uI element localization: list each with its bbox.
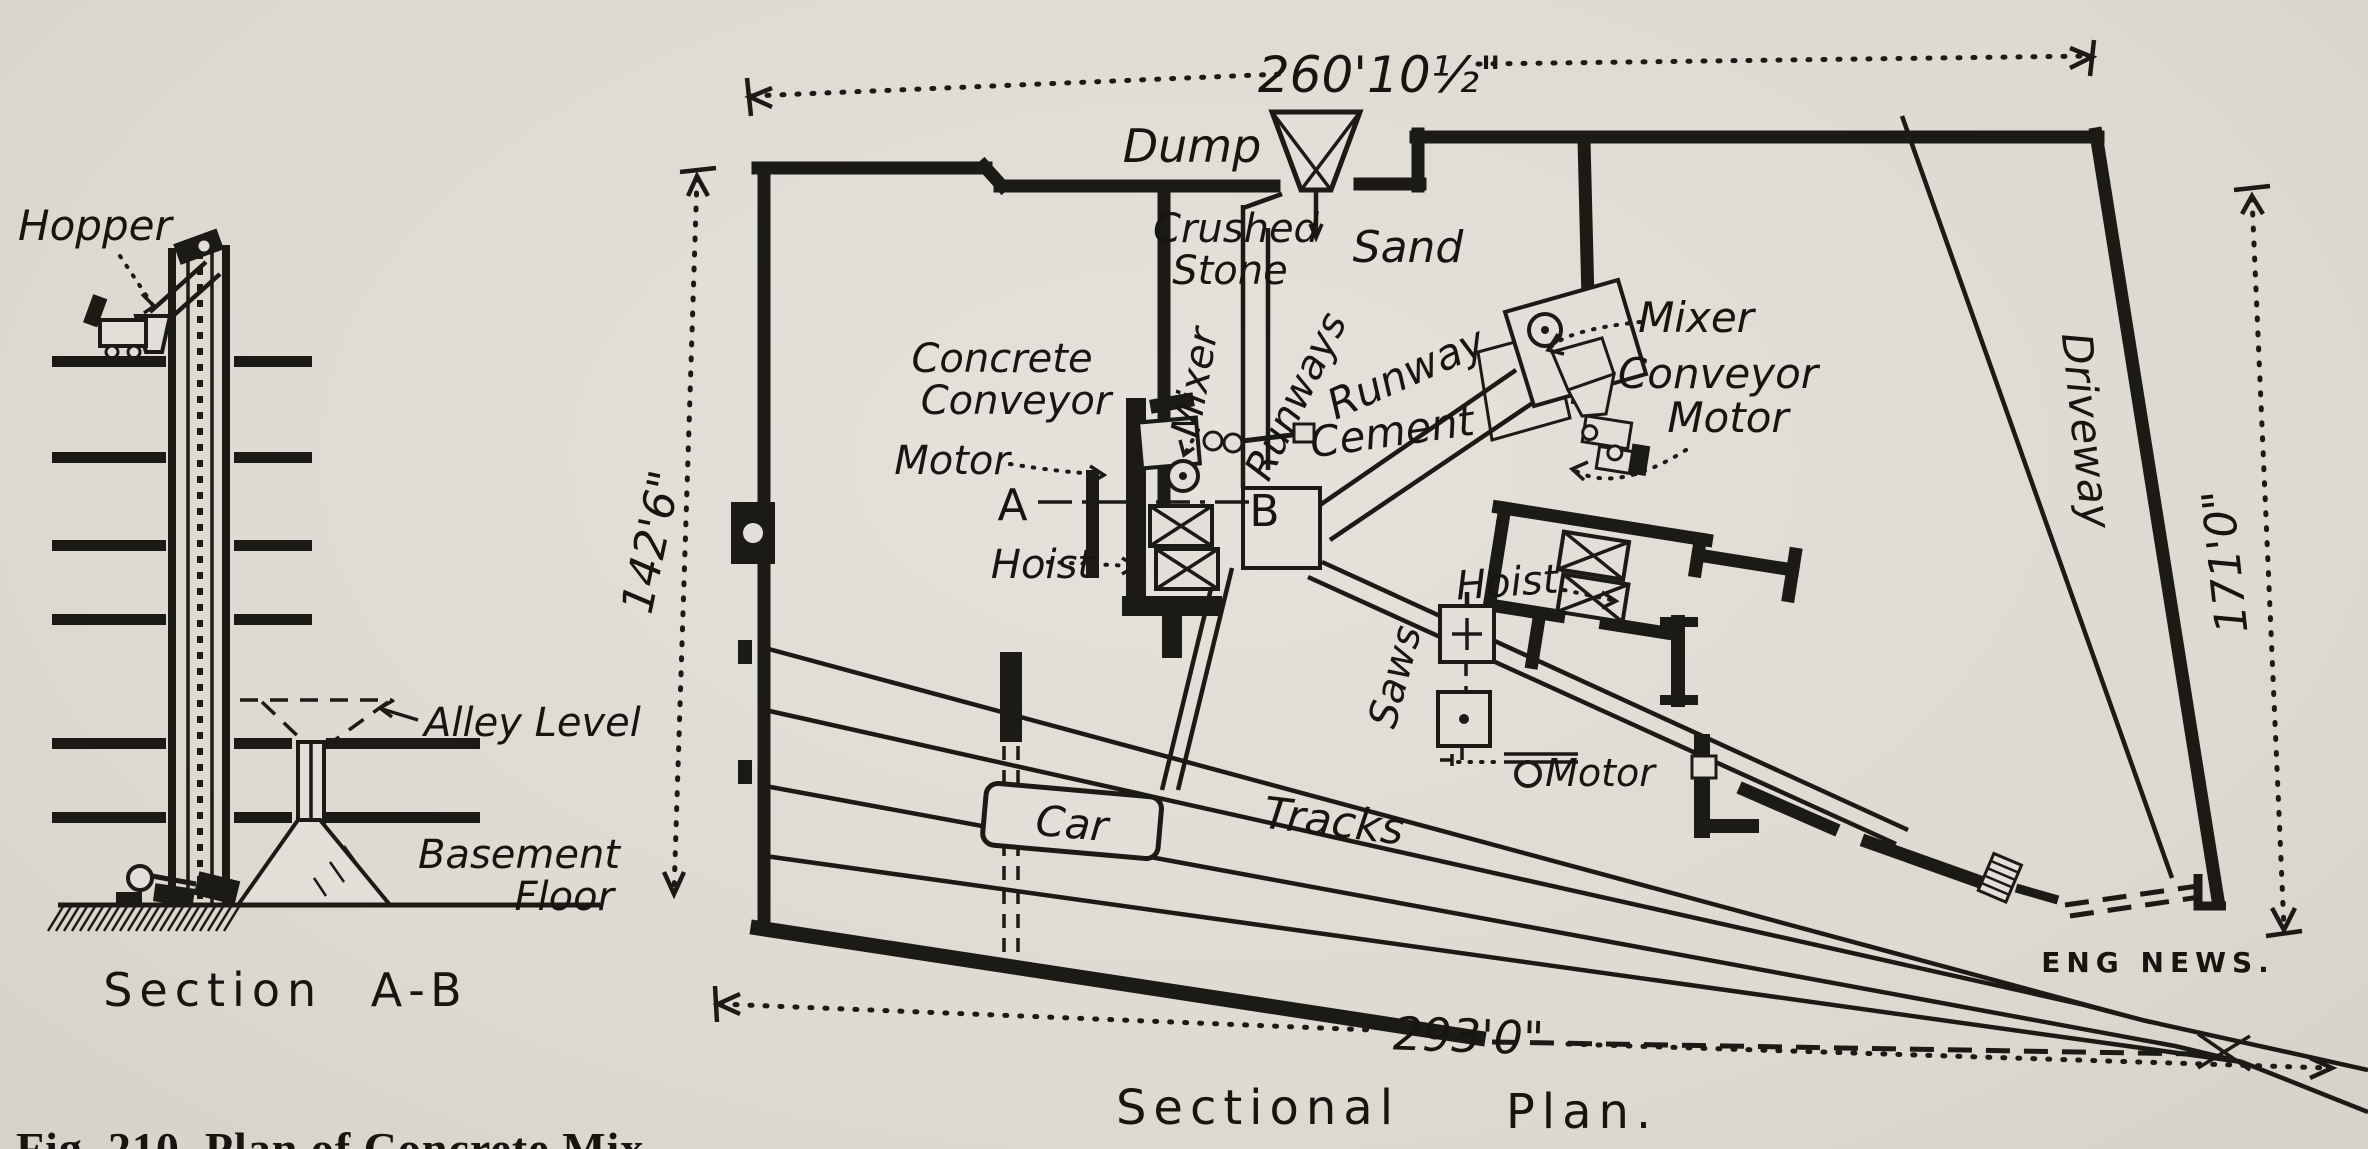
dim-left-label: 142'6" bbox=[612, 466, 692, 618]
saw-motor-label: Motor bbox=[1545, 751, 1657, 795]
alley-funnel bbox=[240, 700, 392, 742]
yard-pier bbox=[1000, 652, 1022, 742]
pier-hole bbox=[743, 523, 763, 543]
concrete-label: Concrete bbox=[911, 336, 1092, 382]
basement-floor-label-1: Basement bbox=[418, 832, 621, 878]
basement-hoist-motor bbox=[116, 866, 240, 907]
column-piers bbox=[1660, 622, 1752, 830]
dimension-top-260: 260'10½" bbox=[747, 40, 2094, 116]
material-mound bbox=[238, 820, 390, 905]
section-ab-view: Hopper Alley Level bbox=[18, 201, 641, 1017]
elevator-tower bbox=[172, 229, 226, 903]
alley-arrowhead bbox=[380, 700, 394, 717]
dump-label: Dump bbox=[1123, 119, 1262, 173]
hoist-left-label: Hoist bbox=[991, 542, 1095, 588]
car-label: Car bbox=[1034, 796, 1113, 851]
sectional-plan-view: A B bbox=[612, 40, 2368, 1140]
section-point-b: B bbox=[1249, 486, 1286, 537]
stone-label: Stone bbox=[1172, 248, 1288, 294]
crossing-grate bbox=[1978, 853, 2021, 902]
motor-right-label: Motor bbox=[1667, 393, 1791, 442]
dim-top-label: 260'10½" bbox=[1258, 46, 1502, 104]
plan-caption-word2: Plan. bbox=[1506, 1084, 1658, 1140]
gate-dashes-2 bbox=[2070, 897, 2200, 916]
head-wheel bbox=[197, 239, 211, 253]
hopper-label: Hopper bbox=[18, 201, 174, 250]
dim-right-label: 171'0" bbox=[2193, 487, 2259, 636]
plan-caption-word1: Sectional bbox=[1116, 1080, 1400, 1136]
mixer-left-label: Mixer bbox=[1163, 322, 1228, 441]
saws-label: Saws bbox=[1360, 621, 1431, 733]
driveway-label: Driveway bbox=[2052, 330, 2121, 532]
figure-caption-fragment: Fig. 210. Plan of Concrete Mix bbox=[16, 1123, 644, 1149]
dim-bottom-label: 293'0" bbox=[1392, 1006, 1545, 1065]
ground-hatching bbox=[48, 905, 240, 931]
conveyor-label: Conveyor bbox=[921, 378, 1114, 424]
car-group: Car bbox=[982, 782, 1163, 859]
motor-left-label: Motor bbox=[894, 438, 1012, 484]
driveway-edge-line bbox=[1902, 116, 2172, 878]
gate-dashes-1 bbox=[2065, 886, 2198, 905]
cart bbox=[100, 320, 146, 346]
crushed-label: Crushed bbox=[1153, 206, 1320, 252]
mixer-right-label: Mixer bbox=[1638, 293, 1757, 342]
motor-left-leader bbox=[1010, 464, 1098, 474]
sand-label: Sand bbox=[1353, 222, 1465, 273]
hoist-right-label: Hoist bbox=[1455, 556, 1561, 609]
alley-level-label: Alley Level bbox=[421, 700, 641, 746]
saw-motor-symbol bbox=[1516, 762, 1540, 786]
building-floors bbox=[52, 356, 480, 823]
section-point-a: A bbox=[997, 480, 1034, 531]
conveyor-right-label: Conveyor bbox=[1618, 349, 1821, 398]
eng-news-credit: ENG NEWS. bbox=[2041, 946, 2275, 979]
top-hopper-chute bbox=[83, 262, 220, 358]
south-wall bbox=[758, 928, 1478, 1038]
drawing-canvas: Hopper Alley Level bbox=[0, 0, 2368, 1149]
tracks-label: Tracks bbox=[1261, 788, 1407, 856]
section-ab-caption: Section A-B bbox=[103, 963, 469, 1017]
scanned-engineering-drawing: Hopper Alley Level bbox=[0, 0, 2368, 1149]
basement-floor-label-2: Floor bbox=[514, 874, 616, 920]
dimension-left-142: 142'6" bbox=[612, 168, 716, 894]
